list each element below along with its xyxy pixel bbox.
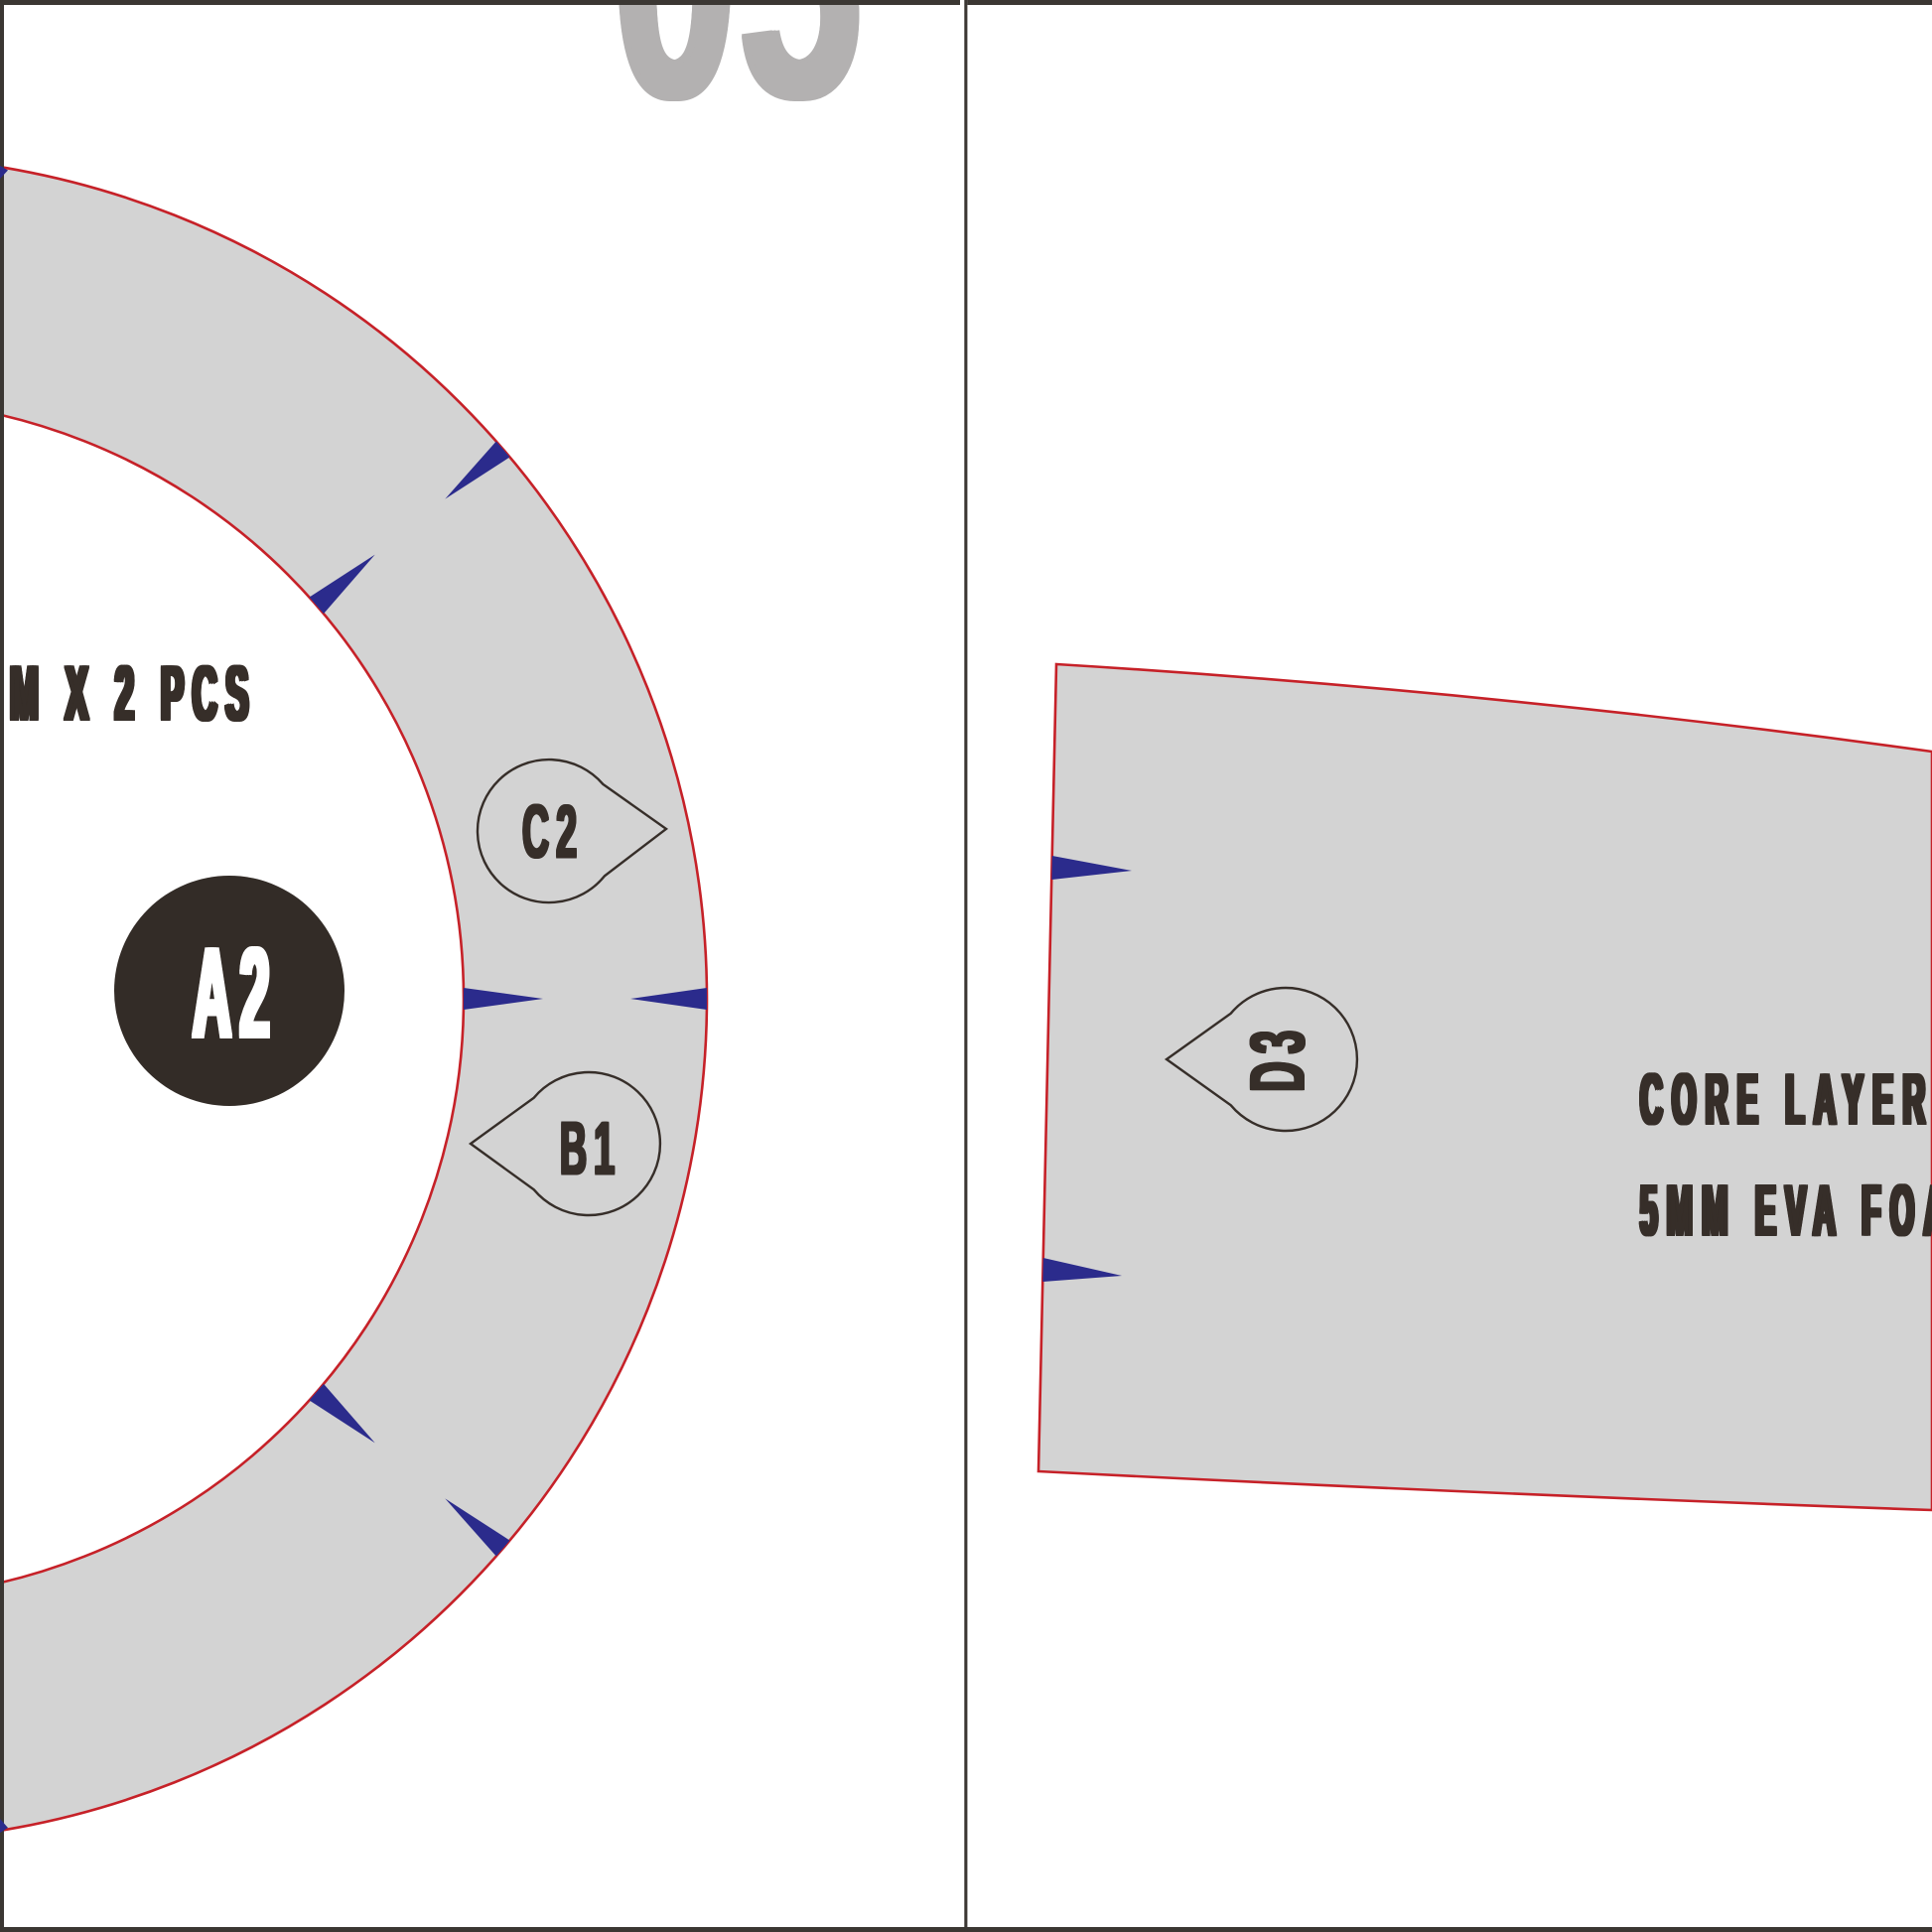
svg-text:05: 05 <box>618 0 868 173</box>
svg-text:C2: C2 <box>523 790 585 875</box>
svg-text:5MM EVA FOAM X 2 PCS: 5MM EVA FOAM X 2 PCS <box>1642 1171 1932 1252</box>
svg-text:5MM EVA FOAM X 2 PCS: 5MM EVA FOAM X 2 PCS <box>0 650 259 738</box>
svg-text:A2: A2 <box>195 922 280 1066</box>
svg-text:D3: D3 <box>1237 1022 1322 1091</box>
svg-text:CORE LAYER: CORE LAYER <box>1642 1059 1932 1141</box>
svg-text:B1: B1 <box>561 1107 622 1191</box>
